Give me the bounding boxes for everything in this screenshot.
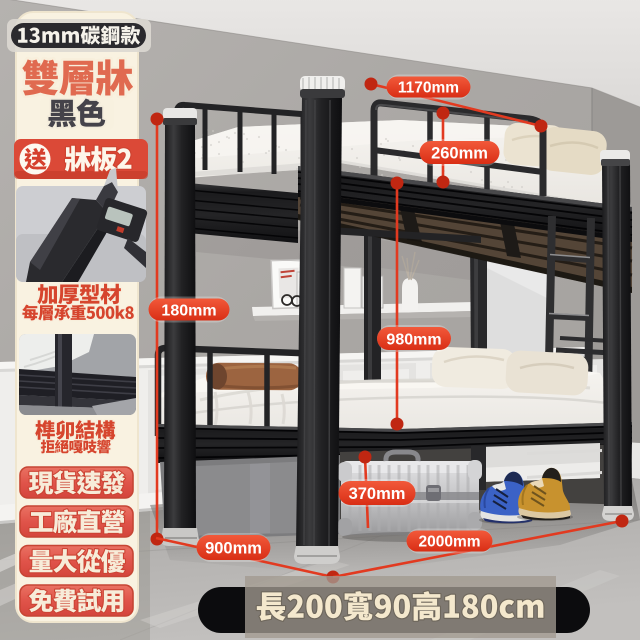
svg-text:1170mm: 1170mm xyxy=(398,80,459,97)
svg-text:370mm: 370mm xyxy=(349,485,406,503)
svg-text:180mm: 180mm xyxy=(161,302,216,319)
svg-text:2000mm: 2000mm xyxy=(418,534,480,551)
svg-text:980mm: 980mm xyxy=(386,331,441,348)
svg-text:900mm: 900mm xyxy=(205,539,262,557)
svg-text:260mm: 260mm xyxy=(431,144,488,162)
